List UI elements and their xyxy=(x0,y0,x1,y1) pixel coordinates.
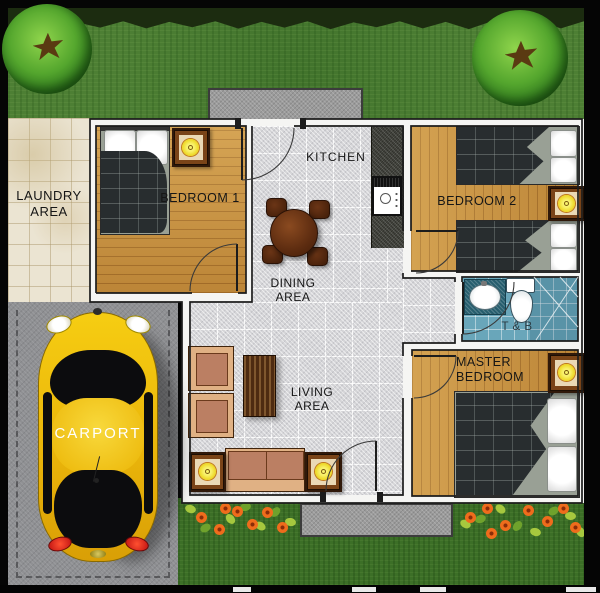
dining-area-label: DININGAREA xyxy=(264,276,322,305)
side-window xyxy=(43,392,52,514)
hood-emblem xyxy=(93,308,102,315)
rear-emblem xyxy=(90,550,106,558)
blanket xyxy=(456,393,554,495)
master-bedroom-label: MASTERBEDROOM xyxy=(456,355,540,385)
back-walkway-pad xyxy=(208,88,363,121)
pillow xyxy=(550,130,577,157)
pillow xyxy=(547,446,577,492)
bedroom2-label: BEDROOM 2 xyxy=(423,194,531,209)
tree-icon xyxy=(2,4,92,94)
faucet-icon xyxy=(481,281,487,286)
nightstand-lamp-icon xyxy=(548,353,586,393)
road-strip xyxy=(0,585,600,593)
front-walkway-pad xyxy=(300,503,453,537)
stove-icon xyxy=(372,176,402,216)
kitchen-label: KITCHEN xyxy=(298,150,374,164)
side-table-lamp-icon xyxy=(189,452,226,492)
armchair xyxy=(188,346,234,391)
pillow xyxy=(550,248,577,272)
armchair xyxy=(188,393,234,438)
road-marking xyxy=(566,587,596,592)
bedroom1-label: BEDROOM 1 xyxy=(146,191,254,206)
antenna-base xyxy=(94,478,99,483)
tree-icon xyxy=(472,10,568,106)
carport-label: CARPORT xyxy=(38,425,158,442)
dining-table xyxy=(270,209,318,257)
road-marking xyxy=(352,587,376,592)
dining-chair xyxy=(309,200,330,219)
bed xyxy=(456,126,580,185)
toilet-bath-label: T & B xyxy=(494,321,540,335)
bed xyxy=(100,126,170,235)
framed-lamp-icon xyxy=(172,128,210,167)
car: CARPORT xyxy=(38,310,160,565)
blanket xyxy=(457,221,549,272)
floor-plan: CARPORT xyxy=(0,0,600,593)
road-marking xyxy=(420,587,446,592)
nightstand-lamp-icon xyxy=(548,186,586,221)
sofa xyxy=(225,448,305,492)
bed xyxy=(456,220,580,273)
blanket xyxy=(457,127,549,184)
pillow xyxy=(547,398,577,444)
bed xyxy=(454,391,580,498)
sink-icon xyxy=(469,284,501,310)
hallway-floor xyxy=(403,278,455,343)
pillow xyxy=(550,157,577,183)
image-border xyxy=(584,0,600,593)
side-table-lamp-icon xyxy=(305,452,342,492)
side-window xyxy=(144,392,153,514)
coffee-table xyxy=(243,355,276,417)
laundry-area-label: LAUNDRYAREA xyxy=(12,188,86,219)
pillow xyxy=(550,223,577,248)
living-area-label: LIVINGAREA xyxy=(284,385,340,414)
road-marking xyxy=(233,587,251,592)
